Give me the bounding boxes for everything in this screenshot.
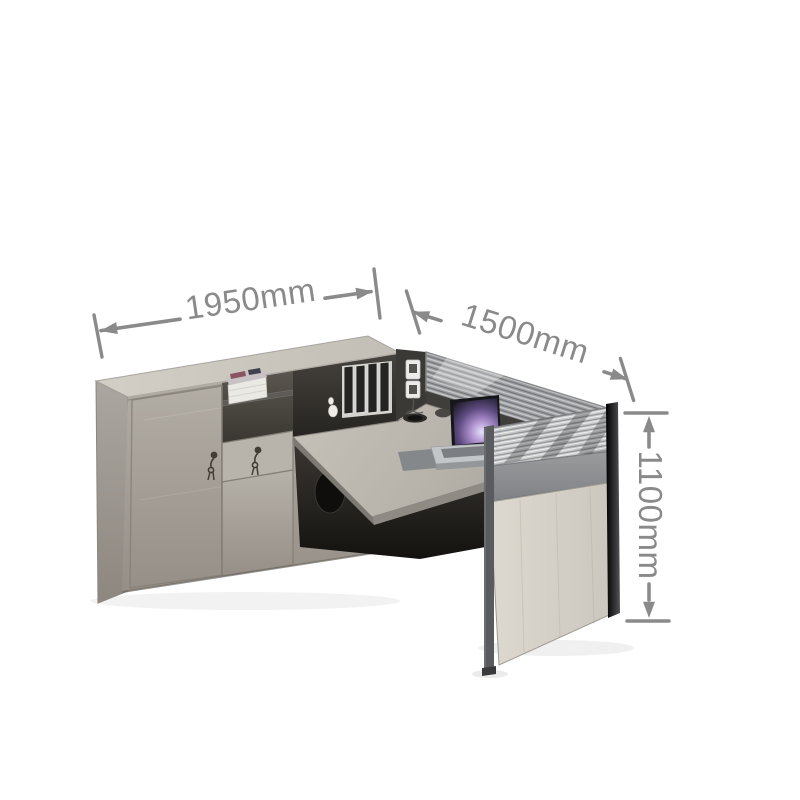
width-tick-left [94,315,102,357]
height-arrow-up [643,416,655,432]
product-image: 1950mm 1500mm 1100mm [0,0,800,800]
depth-dimension-label: 1500mm [457,296,593,371]
privacy-screen-side [482,402,620,676]
workstation-scene: 1950mm 1500mm 1100mm [0,0,800,800]
width-arrow-left [100,322,118,334]
desk-pad [398,449,437,471]
width-tick-right [374,269,380,318]
height-arrow-down [643,602,655,618]
height-dimension-label: 1100mm [632,451,669,580]
cabinet-lower-door [222,470,293,576]
corner-post [606,402,620,618]
mouse [435,409,451,418]
width-dimension-label: 1950mm [183,271,318,327]
cabinet-shadow [90,592,400,610]
width-arrow-right [356,288,374,300]
leg-panel [490,482,618,665]
